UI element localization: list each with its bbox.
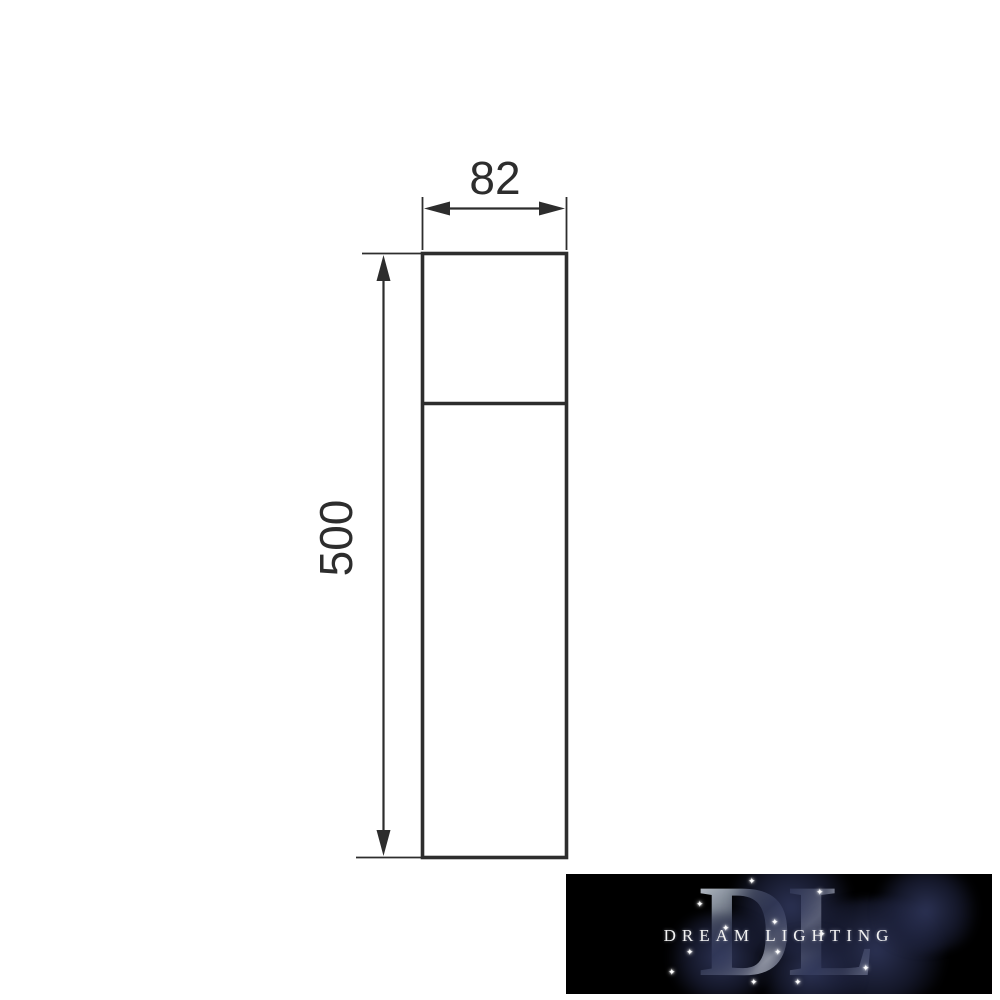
arrow-left-icon [424, 202, 450, 216]
sparkle-icon: ✦ [668, 968, 676, 977]
width-dimension: 82 [423, 152, 567, 250]
sparkle-icon: ✦ [748, 877, 756, 886]
sparkle-icon: ✦ [862, 964, 870, 973]
brand-name-text: DREAM LIGHTING [566, 926, 992, 946]
sparkle-icon: ✦ [696, 900, 704, 909]
height-dimension: 500 [310, 254, 428, 858]
sparkle-icon: ✦ [816, 888, 824, 897]
arrow-right-icon [539, 202, 565, 216]
height-dimension-label: 500 [310, 500, 362, 577]
sparkle-icon: ✦ [686, 948, 694, 957]
sparkle-icon: ✦ [750, 978, 758, 987]
fixture-body-outline [423, 254, 567, 858]
sparkle-icon: ✦ [794, 978, 802, 987]
arrow-up-icon [377, 255, 391, 281]
page: 82 500 [0, 0, 1000, 1000]
sparkle-icon: ✦ [774, 948, 782, 957]
width-dimension-label: 82 [469, 152, 520, 204]
fixture-outline [423, 254, 567, 858]
dimension-drawing: 82 500 [0, 0, 1000, 1000]
arrow-down-icon [377, 830, 391, 856]
brand-watermark: DL ✦ ✦ ✦ ✦ ✦ ✦ ✦ ✦ ✦ ✦ ✦ ✦ DREAM LIGHTIN… [566, 874, 992, 994]
